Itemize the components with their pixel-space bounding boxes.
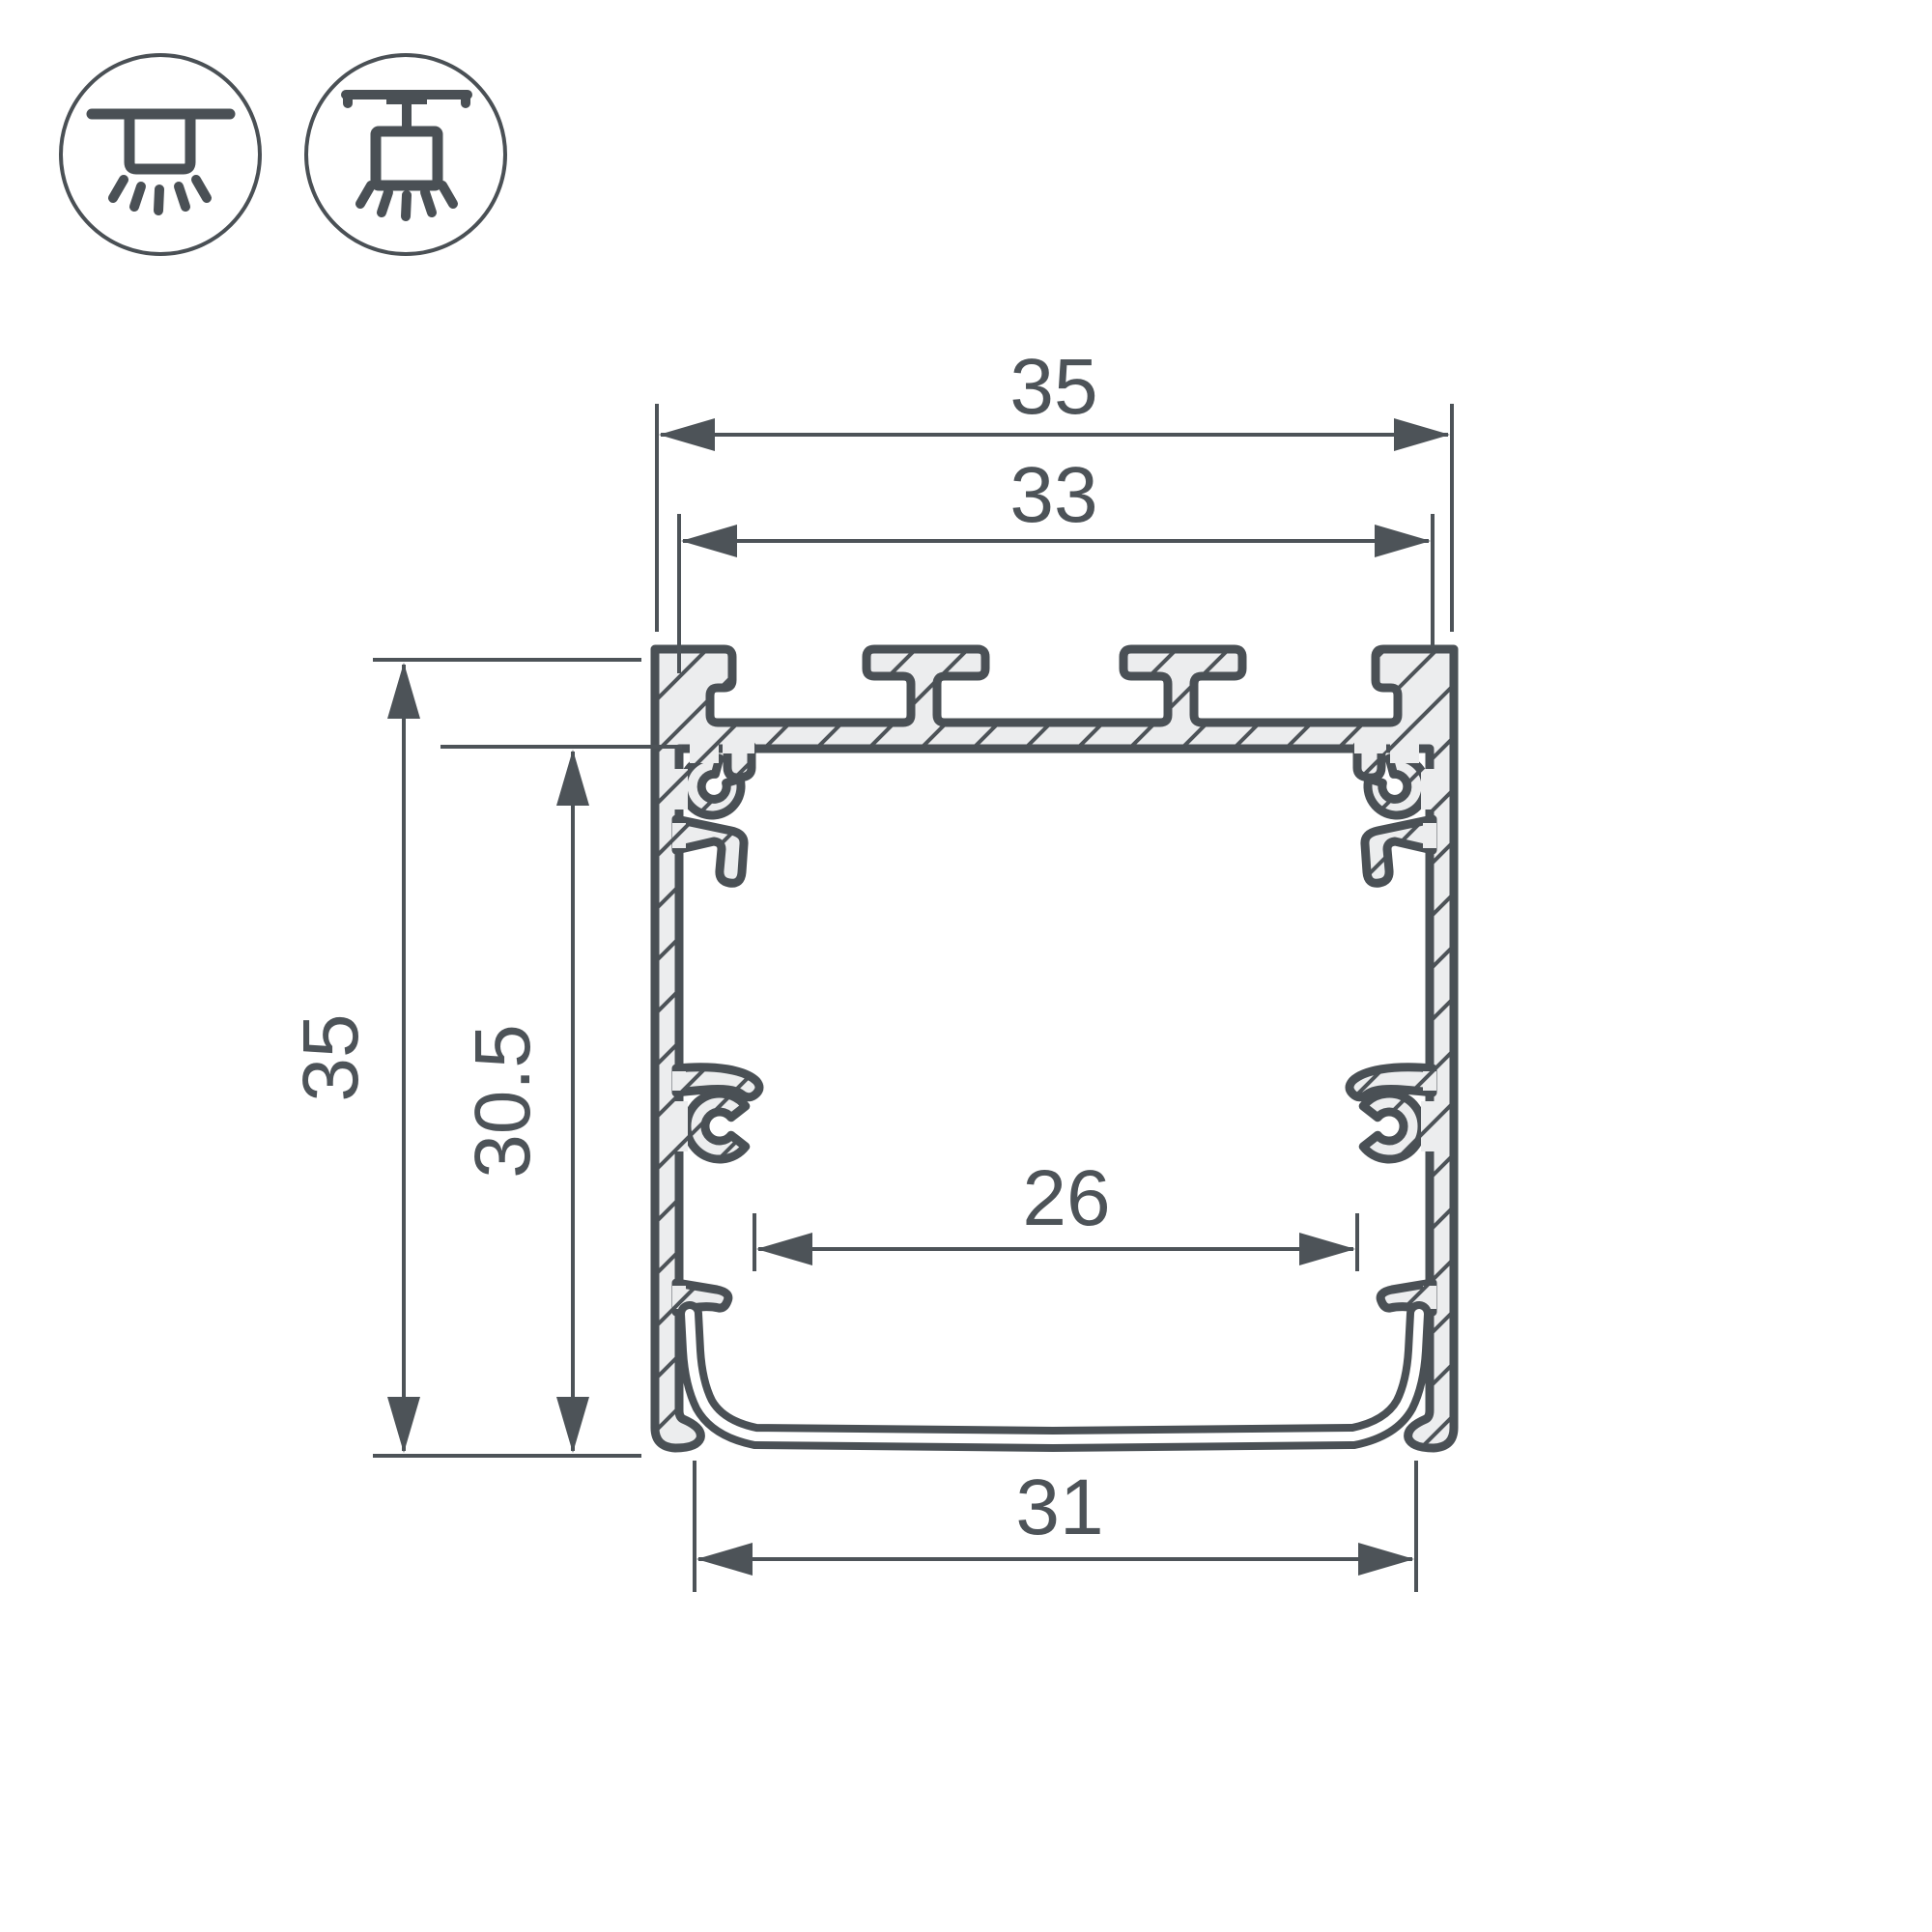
upper-finger <box>1365 819 1433 883</box>
dim-label-top-inner: 33 <box>1009 451 1097 539</box>
dim-label-bottom-cover: 31 <box>1015 1463 1103 1551</box>
mid-screw-boss <box>687 1094 746 1159</box>
arrowheads <box>387 418 1450 1576</box>
dim-label-left-inner: 30.5 <box>459 1024 547 1179</box>
profile-cross-section <box>655 649 1454 1448</box>
dim-label-middle-inner: 26 <box>1022 1154 1110 1242</box>
technical-drawing-page: 35 33 35 30.5 26 31 <box>0 0 1932 1932</box>
screw-bosses-right <box>1350 746 1433 1312</box>
upper-finger <box>676 819 744 883</box>
surface-mount-icon <box>61 55 260 254</box>
light-rays <box>113 180 207 211</box>
diffuser-cover <box>690 1314 1419 1439</box>
dim-label-top-outer: 35 <box>1009 343 1097 431</box>
suspended-mount-icon <box>306 55 505 254</box>
mounting-icons <box>61 55 505 254</box>
technical-drawing: 35 33 35 30.5 26 31 <box>0 0 1932 1932</box>
screw-bosses-left <box>676 746 759 1312</box>
extension-lines <box>373 404 1452 1592</box>
dimension-lines <box>404 435 1448 1559</box>
mid-screw-boss <box>1363 1094 1422 1159</box>
extrusion-body <box>655 649 1454 1448</box>
dim-label-left-outer: 35 <box>287 1013 375 1101</box>
dimensions: 35 33 35 30.5 26 31 <box>287 343 1452 1592</box>
